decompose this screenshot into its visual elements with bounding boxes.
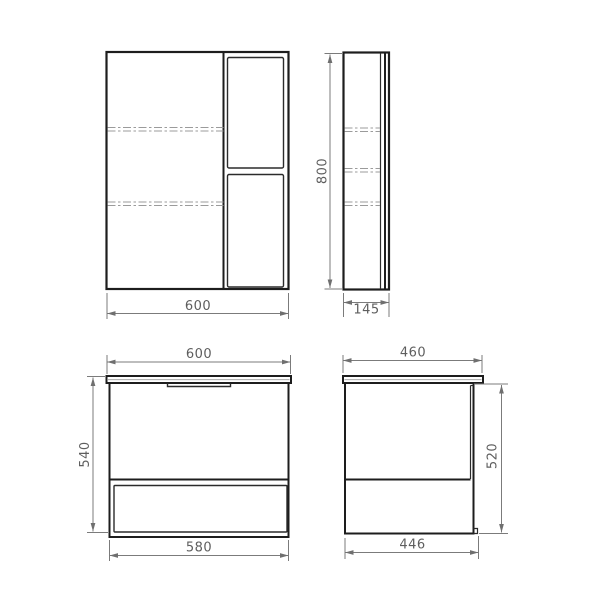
dim-label-mirror-height: 800: [316, 158, 331, 184]
vanity-side-body: [345, 383, 474, 534]
dim-label-vanity-bottom-depth: 446: [399, 538, 425, 553]
technical-drawing-canvas: 600 800 145 600: [0, 0, 600, 600]
mirror-front-upper-door-panel: [228, 58, 284, 169]
dim-label-vanity-side-height: 520: [486, 443, 501, 469]
mirror-front-lower-door-panel: [228, 175, 284, 288]
dim-label-vanity-bottom-width: 580: [186, 541, 212, 556]
dim-label-vanity-depth: 460: [400, 346, 426, 361]
dim-label-vanity-width: 600: [186, 347, 212, 362]
mirror-front-outline: [107, 52, 289, 289]
vanity-side-view: 460 520 446: [343, 346, 508, 560]
dimensional-drawing: 600 800 145 600: [0, 0, 600, 600]
mirror-cabinet-side-view: 800 145: [316, 53, 390, 318]
dim-label-vanity-height: 540: [78, 441, 93, 467]
dim-label-mirror-depth: 145: [353, 303, 379, 318]
dim-label-mirror-width: 600: [185, 299, 211, 314]
vanity-front-view: 600 540 580: [78, 347, 291, 561]
vanity-front-body: [110, 383, 289, 537]
mirror-side-outline: [344, 53, 390, 290]
mirror-cabinet-front-view: 600: [107, 52, 289, 319]
vanity-front-lower-drawer-panel: [114, 486, 287, 533]
